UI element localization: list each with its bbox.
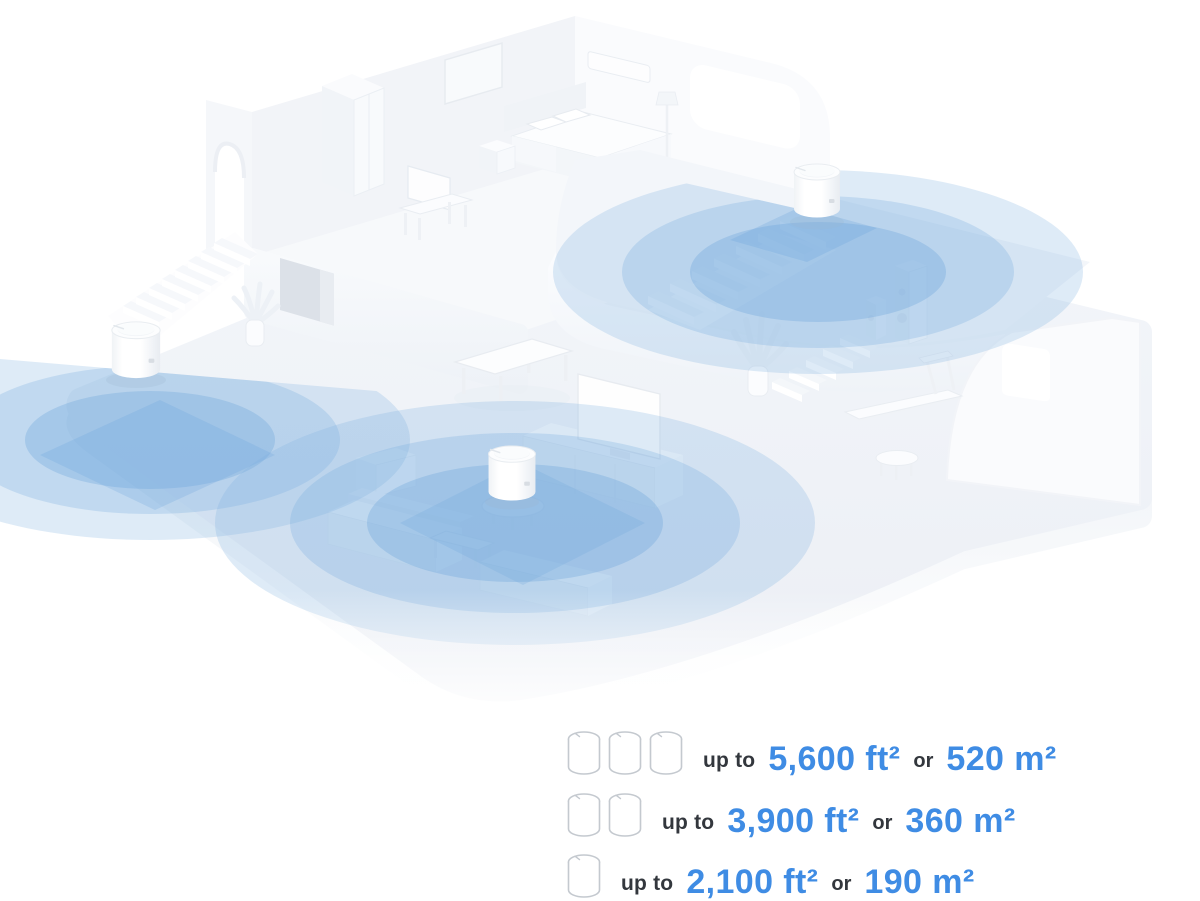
deco-unit-icon (566, 853, 602, 899)
coverage-row-2-units: up to 3,900 ft² or 360 m² (566, 792, 1016, 838)
coverage-prefix: up to (703, 749, 755, 776)
coverage-metric-value: 520 m² (946, 742, 1056, 776)
coverage-prefix: up to (662, 811, 714, 838)
coverage-conjunction: or (872, 812, 892, 838)
plant-left-pot (246, 320, 264, 346)
deco-unit-icon (566, 792, 602, 838)
coverage-row-3-units: up to 5,600 ft² or 520 m² (566, 730, 1057, 776)
unit-count-icons (566, 853, 607, 899)
coverage-metric-value: 360 m² (905, 804, 1015, 838)
nightstand (479, 140, 515, 174)
coverage-metric-value: 190 m² (864, 865, 974, 899)
mesh-unit-1 (112, 322, 160, 378)
deco-unit-icon (607, 730, 643, 776)
coverage-marketing-graphic: up to 5,600 ft² or 520 m² up to 3,900 ft… (0, 0, 1200, 900)
coverage-imperial-value: 3,900 ft² (727, 804, 859, 838)
unit-count-icons (566, 730, 689, 776)
unit-count-icons (566, 792, 648, 838)
mesh-unit-3 (489, 446, 536, 501)
coverage-conjunction: or (913, 750, 933, 776)
gym-table (876, 451, 918, 481)
deco-unit-icon (566, 730, 602, 776)
coverage-imperial-value: 5,600 ft² (768, 742, 900, 776)
deco-unit-icon (648, 730, 684, 776)
deco-unit-icon (607, 792, 643, 838)
bottom-fade (0, 590, 1200, 720)
garage-window (1002, 344, 1050, 401)
coverage-imperial-value: 2,100 ft² (686, 865, 818, 899)
coverage-prefix: up to (621, 872, 673, 899)
coverage-conjunction: or (831, 873, 851, 899)
wardrobe (322, 74, 384, 196)
coverage-row-1-unit: up to 2,100 ft² or 190 m² (566, 853, 975, 899)
mesh-unit-2 (794, 164, 840, 218)
